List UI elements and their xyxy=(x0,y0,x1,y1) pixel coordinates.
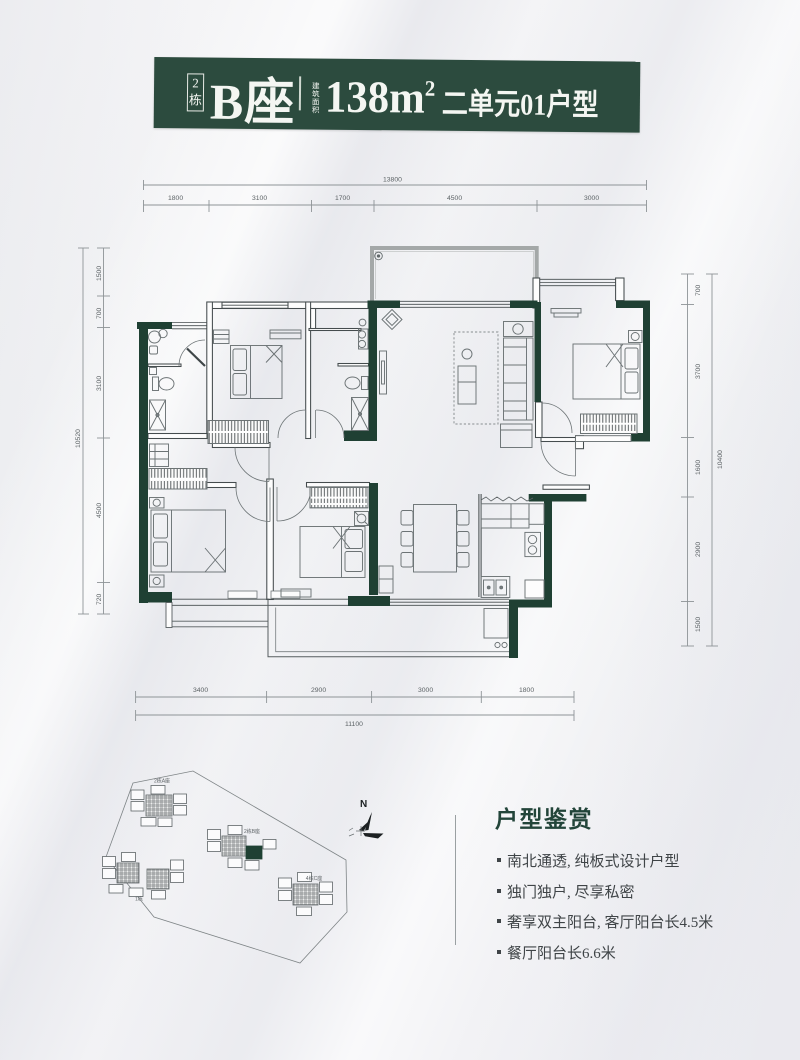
svg-text:2栋A座: 2栋A座 xyxy=(154,778,170,785)
svg-text:1600: 1600 xyxy=(695,460,702,475)
svg-text:3400: 3400 xyxy=(193,687,208,694)
svg-text:13800: 13800 xyxy=(383,177,402,184)
svg-text:1500: 1500 xyxy=(96,266,103,281)
svg-text:4500: 4500 xyxy=(96,503,103,518)
svg-text:3100: 3100 xyxy=(96,376,103,391)
svg-text:700: 700 xyxy=(96,307,103,319)
svg-text:1800: 1800 xyxy=(519,687,534,694)
svg-text:10520: 10520 xyxy=(75,429,82,448)
svg-text:4500: 4500 xyxy=(447,195,462,202)
svg-text:2900: 2900 xyxy=(695,542,702,557)
svg-text:4栋C座: 4栋C座 xyxy=(306,875,322,882)
svg-text:3100: 3100 xyxy=(252,195,267,202)
svg-text:3700: 3700 xyxy=(695,364,702,379)
svg-text:1栋: 1栋 xyxy=(135,896,143,903)
svg-text:1700: 1700 xyxy=(335,195,350,202)
svg-text:720: 720 xyxy=(96,593,103,605)
svg-text:1500: 1500 xyxy=(695,617,702,632)
svg-text:3000: 3000 xyxy=(584,195,599,202)
svg-text:700: 700 xyxy=(695,284,702,296)
svg-text:2900: 2900 xyxy=(311,687,326,694)
svg-text:2栋B座: 2栋B座 xyxy=(244,828,260,835)
svg-text:3000: 3000 xyxy=(418,687,433,694)
svg-text:11100: 11100 xyxy=(345,721,363,728)
svg-text:N: N xyxy=(360,799,367,810)
svg-text:10400: 10400 xyxy=(717,450,724,469)
svg-text:1800: 1800 xyxy=(168,195,183,202)
